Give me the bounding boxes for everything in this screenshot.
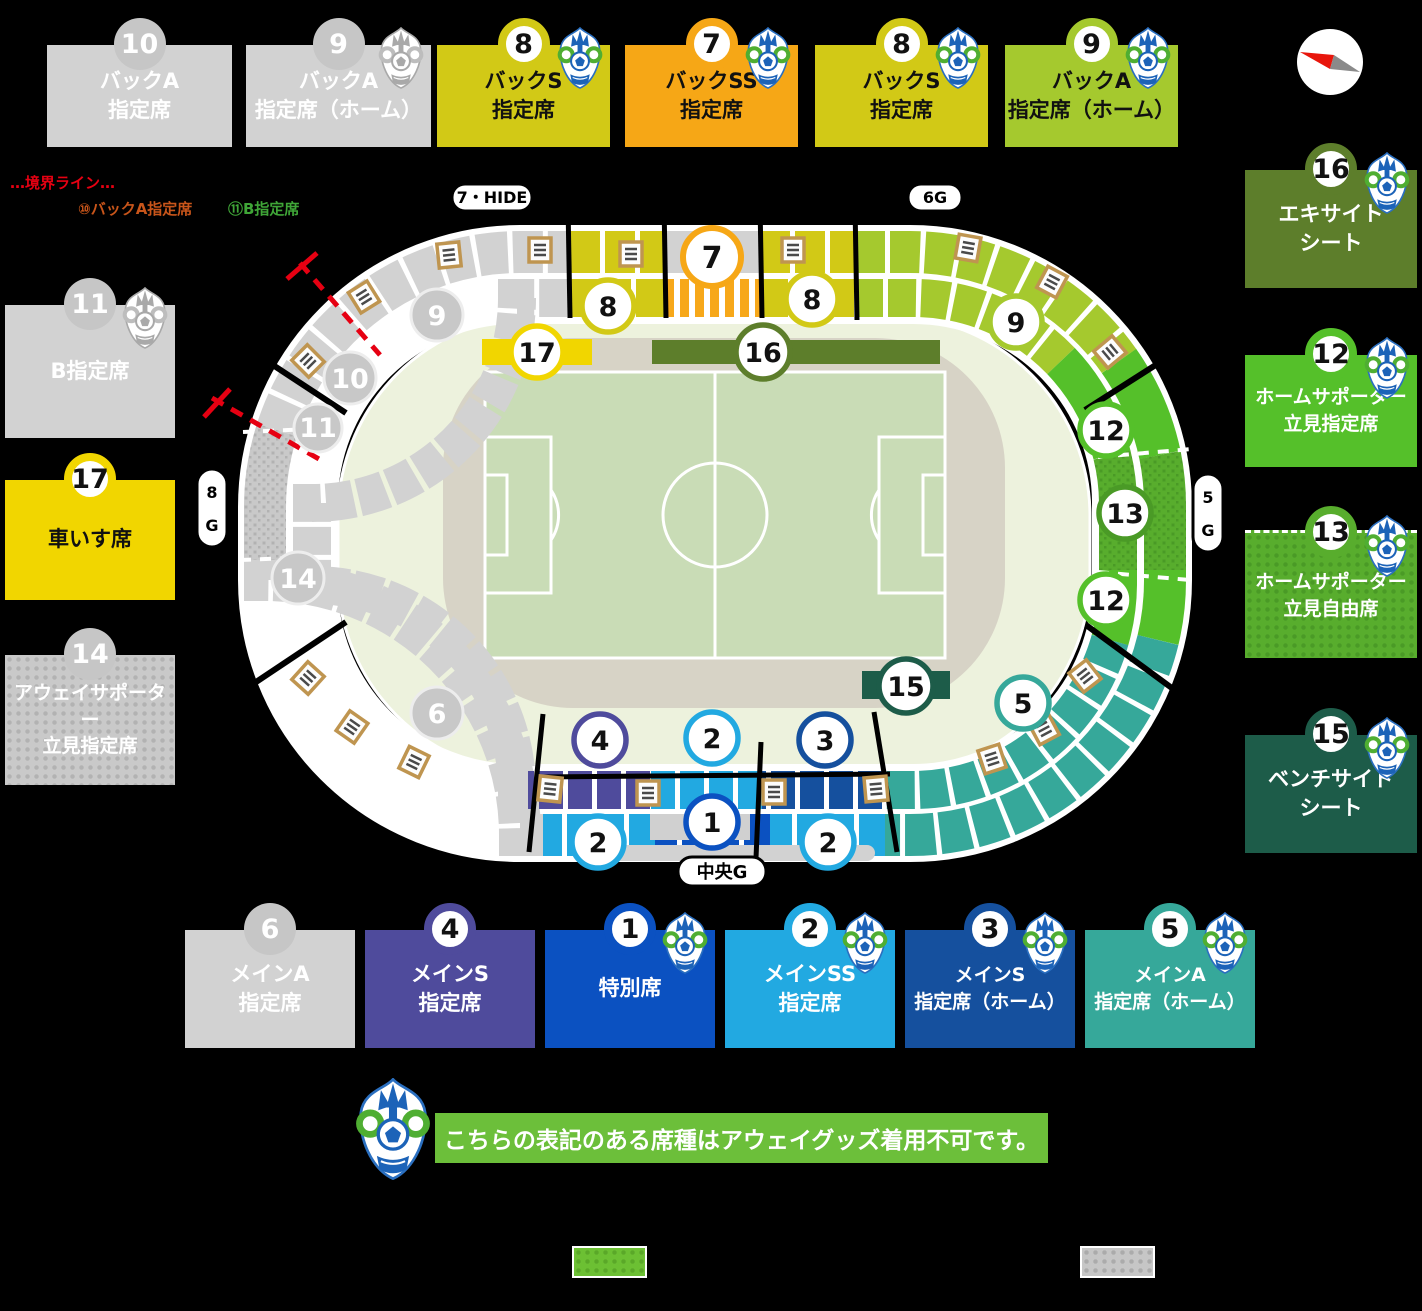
excite-bar-short bbox=[652, 340, 738, 364]
legend-box-away-standing[interactable]: 14 アウェイサポーター 立見指定席 bbox=[5, 655, 175, 785]
away-goods-notice: こちらの表記のある席種はアウェイグッズ着用不可です。 bbox=[435, 1113, 1048, 1163]
section-label: バックA 指定席 bbox=[100, 67, 179, 126]
svg-text:4: 4 bbox=[591, 726, 610, 757]
club-crest-icon bbox=[1361, 152, 1413, 214]
club-crest-large-icon bbox=[350, 1078, 436, 1180]
zone-home-standing-bottom-outer bbox=[1158, 570, 1165, 640]
badge-8-left: 8 bbox=[582, 280, 634, 332]
club-crest-icon bbox=[659, 912, 711, 974]
zone-home-standing-free-outer bbox=[1160, 455, 1165, 570]
legend-box-back-a-home[interactable]: 9 バックA 指定席（ホーム） bbox=[1005, 45, 1178, 147]
section-label: 特別席 bbox=[599, 974, 662, 1003]
legend-box-back-ss[interactable]: 7 バックSS 指定席 bbox=[625, 45, 798, 147]
svg-text:8: 8 bbox=[206, 483, 217, 502]
zone-away-standing-outer bbox=[265, 430, 277, 560]
pitch bbox=[485, 372, 945, 658]
boundary-legend-title: …境界ライン… bbox=[10, 172, 115, 193]
gate-pill-chuo: 中央G bbox=[678, 857, 766, 886]
badge-12-top: 12 bbox=[1080, 404, 1132, 456]
badge-1: 1 bbox=[686, 796, 738, 848]
gate-pill-5g: 5 G bbox=[1193, 474, 1223, 552]
section-number-badge: 8 bbox=[876, 18, 928, 70]
gate-icon bbox=[782, 238, 804, 262]
legend-box-wheelchair[interactable]: 17 車いす席 bbox=[5, 480, 175, 600]
boundary-legend-b-seat: ⑪B指定席 bbox=[228, 198, 299, 219]
badge-17: 17 bbox=[511, 326, 563, 378]
svg-text:8: 8 bbox=[803, 285, 822, 316]
svg-text:2: 2 bbox=[703, 724, 722, 755]
svg-text:9: 9 bbox=[1007, 308, 1026, 339]
boundary-legend-back-a: ⑩バックA指定席 bbox=[78, 198, 192, 219]
gate-pill-6g: 6G bbox=[908, 184, 962, 211]
section-number-badge: 2 bbox=[784, 903, 836, 955]
pattern-swatch-green bbox=[572, 1246, 647, 1278]
legend-box-main-s-home[interactable]: 3 メインS 指定席（ホーム） bbox=[905, 930, 1075, 1048]
svg-text:16: 16 bbox=[744, 338, 782, 369]
badge-9-away: 9 bbox=[411, 289, 463, 341]
legend-box-back-s-left[interactable]: 8 バックS 指定席 bbox=[437, 45, 610, 147]
badge-16: 16 bbox=[736, 325, 790, 379]
section-number-badge: 15 bbox=[1305, 708, 1357, 760]
section-number-badge: 1 bbox=[604, 903, 656, 955]
club-crest-icon bbox=[1199, 912, 1251, 974]
svg-text:5: 5 bbox=[1014, 689, 1033, 720]
pattern-swatch-gray bbox=[1080, 1246, 1155, 1278]
section-label: バックS 指定席 bbox=[484, 67, 562, 126]
gate-icon bbox=[864, 776, 888, 802]
svg-text:1: 1 bbox=[703, 808, 722, 839]
legend-box-b-seat[interactable]: 11 B指定席 bbox=[5, 305, 175, 438]
legend-box-back-a-away[interactable]: 10 バックA 指定席 bbox=[47, 45, 232, 147]
svg-text:7: 7 bbox=[702, 241, 723, 276]
section-number-badge: 11 bbox=[64, 278, 116, 330]
gate-icon bbox=[978, 744, 1006, 774]
svg-text:6: 6 bbox=[428, 699, 447, 730]
section-label: メインS 指定席 bbox=[411, 960, 489, 1019]
badge-15: 15 bbox=[879, 659, 933, 713]
badge-9-home: 9 bbox=[990, 296, 1042, 348]
club-crest-icon bbox=[932, 27, 984, 89]
section-label: B指定席 bbox=[50, 357, 129, 386]
section-label: アウェイサポーター 立見指定席 bbox=[5, 680, 175, 760]
svg-text:2: 2 bbox=[819, 828, 838, 859]
notice-text: こちらの表記のある席種はアウェイグッズ着用不可です。 bbox=[444, 1121, 1039, 1155]
svg-text:8: 8 bbox=[599, 292, 618, 323]
gate-icon bbox=[637, 781, 659, 805]
svg-text:7・HIDE: 7・HIDE bbox=[457, 188, 528, 207]
svg-text:中央G: 中央G bbox=[697, 861, 748, 883]
legend-box-bench-side[interactable]: 15 ベンチサイド シート bbox=[1245, 735, 1417, 853]
club-crest-icon bbox=[1361, 515, 1413, 577]
svg-text:10: 10 bbox=[331, 364, 369, 395]
svg-text:12: 12 bbox=[1087, 586, 1125, 617]
club-crest-gray-icon bbox=[119, 287, 171, 349]
club-crest-gray-icon bbox=[375, 27, 427, 89]
section-number-badge: 3 bbox=[964, 903, 1016, 955]
section-number-badge: 17 bbox=[64, 453, 116, 505]
legend-box-home-standing-reserved[interactable]: 12 ホームサポーター 立見指定席 bbox=[1245, 355, 1417, 467]
club-crest-icon bbox=[839, 912, 891, 974]
badge-2-inner: 2 bbox=[686, 712, 738, 764]
badge-14: 14 bbox=[272, 552, 324, 604]
gate-icon bbox=[955, 234, 981, 261]
svg-text:6G: 6G bbox=[923, 188, 947, 207]
section-number-badge: 10 bbox=[114, 18, 166, 70]
gate-pill-7hide: 7・HIDE bbox=[452, 184, 532, 211]
badge-10: 10 bbox=[324, 352, 376, 404]
gate-icon bbox=[620, 242, 642, 266]
gate-icon bbox=[529, 238, 551, 262]
club-crest-icon bbox=[1122, 27, 1174, 89]
club-crest-icon bbox=[1361, 717, 1413, 779]
svg-text:17: 17 bbox=[518, 338, 556, 369]
club-crest-icon bbox=[1019, 912, 1071, 974]
svg-text:12: 12 bbox=[1087, 416, 1125, 447]
svg-text:11: 11 bbox=[299, 413, 337, 444]
section-number-badge: 14 bbox=[64, 628, 116, 680]
section-number-badge: 13 bbox=[1305, 506, 1357, 558]
gate-icon bbox=[437, 242, 461, 268]
legend-box-excite-seat[interactable]: 16 エキサイト シート bbox=[1245, 170, 1417, 288]
badge-2-left: 2 bbox=[572, 816, 624, 868]
badge-5: 5 bbox=[997, 677, 1049, 729]
compass-icon bbox=[1296, 28, 1364, 96]
section-number-badge: 9 bbox=[1066, 18, 1118, 70]
legend-box-back-a-home-gray[interactable]: 9 バックA 指定席（ホーム） bbox=[246, 45, 431, 147]
badge-11: 11 bbox=[294, 404, 342, 452]
gate-pill-8g: 8 G bbox=[197, 469, 227, 547]
badge-12-bottom: 12 bbox=[1080, 574, 1132, 626]
badge-8-right: 8 bbox=[786, 273, 838, 325]
section-number-badge: 4 bbox=[424, 903, 476, 955]
svg-text:9: 9 bbox=[428, 301, 447, 332]
club-crest-icon bbox=[554, 27, 606, 89]
legend-box-main-ss[interactable]: 2 メインSS 指定席 bbox=[725, 930, 895, 1048]
svg-text:14: 14 bbox=[279, 564, 317, 595]
svg-text:3: 3 bbox=[816, 726, 835, 757]
badge-7: 7 bbox=[683, 228, 741, 286]
club-crest-icon bbox=[1361, 337, 1413, 399]
badge-6: 6 bbox=[411, 687, 463, 739]
section-number-badge: 16 bbox=[1305, 143, 1357, 195]
section-label: メインA 指定席 bbox=[230, 960, 309, 1019]
svg-text:2: 2 bbox=[589, 828, 608, 859]
svg-text:5: 5 bbox=[1202, 488, 1213, 507]
legend-box-home-standing-free[interactable]: 13 ホームサポーター 立見自由席 bbox=[1245, 530, 1417, 658]
badge-4: 4 bbox=[574, 714, 626, 766]
legend-box-main-s[interactable]: 4 メインS 指定席 bbox=[365, 930, 535, 1048]
section-number-badge: 5 bbox=[1144, 903, 1196, 955]
svg-text:15: 15 bbox=[887, 672, 925, 703]
legend-box-back-s-right[interactable]: 8 バックS 指定席 bbox=[815, 45, 988, 147]
legend-box-tokubetsu[interactable]: 1 特別席 bbox=[545, 930, 715, 1048]
section-number-badge: 12 bbox=[1305, 328, 1357, 380]
svg-text:13: 13 bbox=[1106, 499, 1144, 530]
stadium-seating-map: 7 8 8 9 9 10 11 14 6 12 13 12 5 4 2 3 1 … bbox=[0, 0, 1422, 1311]
club-crest-icon bbox=[742, 27, 794, 89]
svg-text:G: G bbox=[205, 516, 218, 535]
section-number-badge: 9 bbox=[313, 18, 365, 70]
badge-13: 13 bbox=[1099, 487, 1151, 539]
badge-2-right: 2 bbox=[802, 816, 854, 868]
legend-box-main-a-home[interactable]: 5 メインA 指定席（ホーム） bbox=[1085, 930, 1255, 1048]
badge-3: 3 bbox=[799, 714, 851, 766]
section-number-badge: 8 bbox=[498, 18, 550, 70]
gate-icon bbox=[538, 776, 562, 802]
svg-text:G: G bbox=[1201, 521, 1214, 540]
gate-icon bbox=[763, 780, 785, 804]
legend-box-main-a-away[interactable]: 6 メインA 指定席 bbox=[185, 930, 355, 1048]
section-label: 車いす席 bbox=[48, 525, 132, 554]
section-label: バックS 指定席 bbox=[862, 67, 940, 126]
section-number-badge: 7 bbox=[686, 18, 738, 70]
section-number-badge: 6 bbox=[244, 903, 296, 955]
